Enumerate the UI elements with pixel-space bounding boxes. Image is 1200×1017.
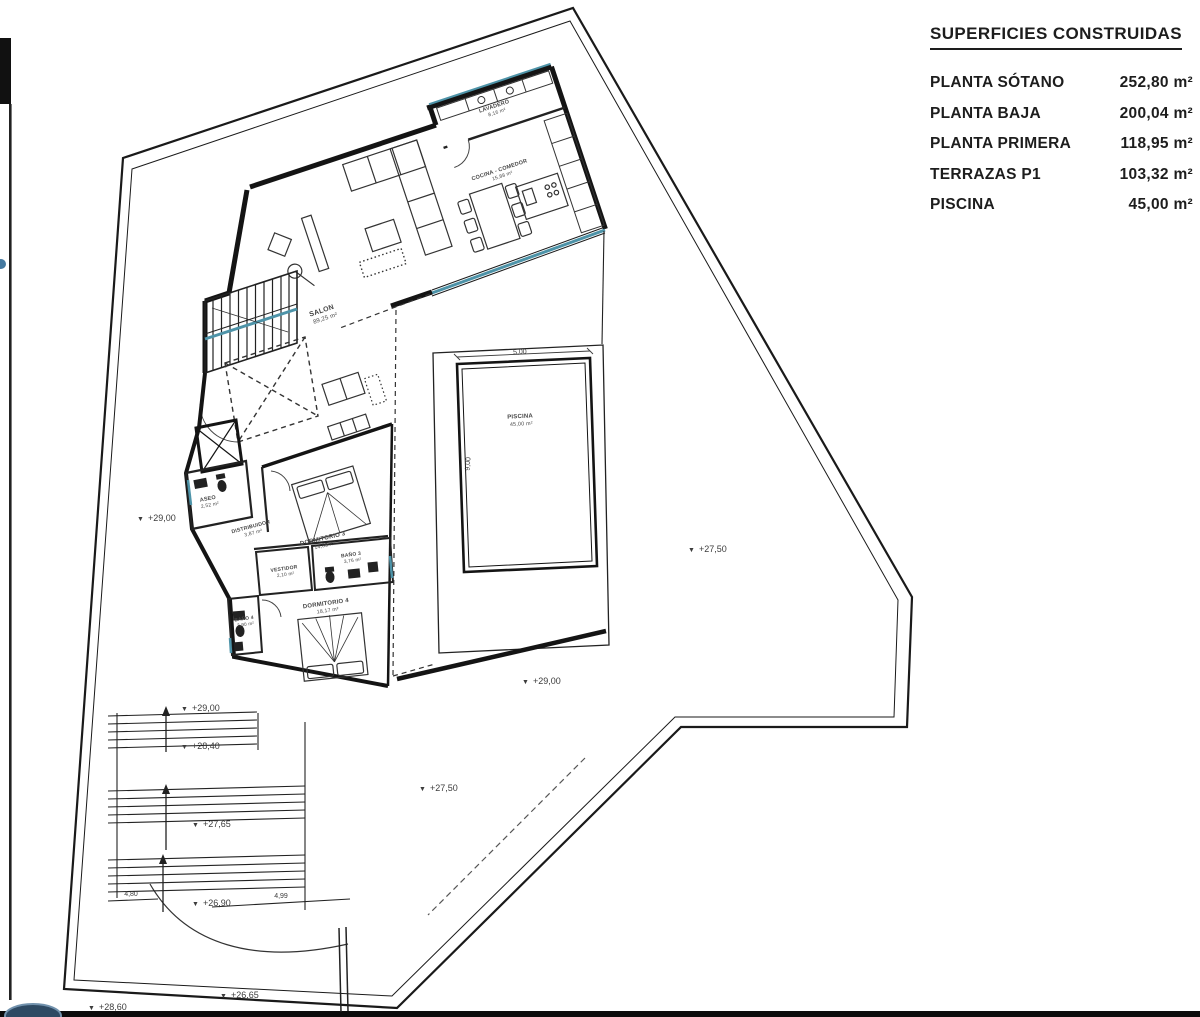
bano3-label: BAÑO 3 3,76 m² — [341, 550, 364, 566]
pool-basin — [457, 358, 597, 572]
legend-value: 252,80 m² — [1120, 74, 1193, 92]
elevation-left: ▼+29,00 — [137, 513, 176, 523]
legend-title: SUPERFICIES CONSTRUIDAS — [930, 24, 1182, 50]
retaining-wall — [397, 631, 606, 679]
stair-direction-arrows — [159, 706, 170, 912]
steps-width-dim: 4,80 — [124, 891, 138, 898]
elevation-stairs-bottom: ▼+26,90 — [192, 898, 231, 908]
pool-area — [397, 231, 609, 679]
piscina-label: PISCINA 45,00 m² — [507, 413, 535, 428]
areas-legend: SUPERFICIES CONSTRUIDAS PLANTA SÓTANO 25… — [930, 24, 1193, 227]
setback-dashed-line — [428, 758, 585, 915]
lavadero-window — [429, 64, 550, 104]
house-main-wing: SALON 89,25 m² LAVADERO 8,16 m² COCINA -… — [241, 64, 642, 440]
logo-blue-semicircle — [5, 1004, 61, 1017]
dining-table — [456, 179, 532, 253]
terrace-dashed-edges — [340, 294, 435, 676]
aseo-fixtures — [193, 473, 227, 493]
coffee-table — [350, 219, 408, 277]
legend-value: 103,32 m² — [1120, 166, 1193, 184]
legend-label: PLANTA PRIMERA — [930, 135, 1071, 153]
bath4-window — [230, 638, 231, 653]
site-steps — [108, 706, 350, 912]
legend-value: 200,04 m² — [1120, 105, 1193, 123]
salon-label: SALON 89,25 m² — [309, 303, 340, 326]
elevation-site-edge: ▼+28,60 — [88, 1002, 127, 1012]
legend-value: 45,00 m² — [1129, 196, 1193, 214]
legend-row-terrazas: TERRAZAS P1 103,32 m² — [930, 166, 1193, 184]
elevation-stairs-mid: ▼+28,40 — [181, 741, 220, 751]
blue-dot-mark — [0, 259, 6, 269]
elevation-stairs-top: ▼+29,00 — [181, 703, 220, 713]
stair-glass-rail — [205, 309, 297, 339]
elevation-markers: ▼+29,00 ▼+27,50 ▼+29,00 ▼+29,00 ▼+28,40 … — [88, 513, 727, 1012]
bath3-fixtures — [325, 562, 379, 584]
dimension-labels: 5,00 9,00 4,80 4,99 — [124, 349, 527, 900]
legend-label: TERRAZAS P1 — [930, 166, 1041, 184]
stair-treads — [213, 274, 289, 371]
sofa — [343, 140, 452, 271]
bed-dorm3 — [292, 466, 371, 542]
kitchen-island — [516, 173, 568, 219]
elevation-pool-bottom: ▼+29,00 — [522, 676, 561, 686]
legend-row-sotano: PLANTA SÓTANO 252,80 m² — [930, 74, 1193, 92]
legend-label: PLANTA BAJA — [930, 105, 1041, 123]
floor-plan-sheet: SALON 89,25 m² LAVADERO 8,16 m² COCINA -… — [0, 0, 1200, 1017]
bedroom-wing — [186, 373, 393, 686]
pool-width-dim: 5,00 — [513, 349, 527, 357]
walk-width-dim: 4,99 — [274, 893, 288, 900]
elevation-right: ▼+27,50 — [688, 544, 727, 554]
door-arc — [262, 600, 281, 617]
legend-label: PISCINA — [930, 196, 995, 214]
vestidor-label: VESTIDOR 2,10 m² — [270, 564, 300, 580]
glass-wall-salon — [391, 227, 605, 306]
legend-row-primera: PLANTA PRIMERA 118,95 m² — [930, 135, 1193, 153]
legend-row-piscina: PISCINA 45,00 m² — [930, 196, 1193, 214]
pool-height-dim: 9,00 — [465, 457, 473, 471]
staircase — [205, 190, 297, 373]
legend-row-baja: PLANTA BAJA 200,04 m² — [930, 105, 1193, 123]
elevation-site-low: ▼+26,65 — [220, 990, 259, 1000]
legend-value: 118,95 m² — [1120, 135, 1193, 153]
legend-label: PLANTA SÓTANO — [930, 74, 1065, 92]
aseo-label: ASEO 2,52 m² — [199, 494, 220, 510]
door-arc — [447, 140, 475, 168]
door-arc — [271, 471, 290, 491]
elevation-terrace: ▼+27,50 — [419, 783, 458, 793]
